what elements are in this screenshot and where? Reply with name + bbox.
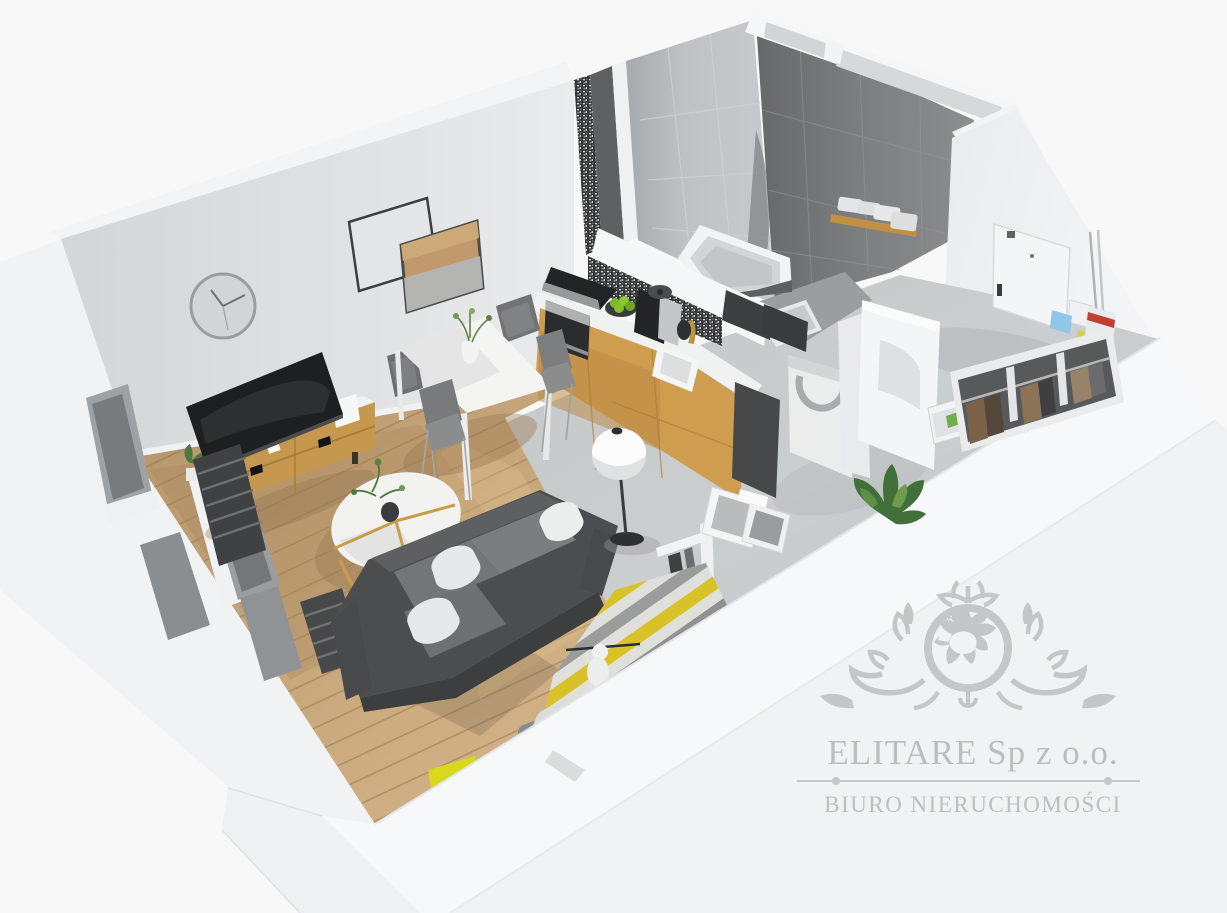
svg-text:BIURO NIERUCHOMOŚCI: BIURO NIERUCHOMOŚCI: [824, 791, 1122, 817]
svg-text:ELITARE Sp z o.o.: ELITARE Sp z o.o.: [827, 733, 1118, 772]
